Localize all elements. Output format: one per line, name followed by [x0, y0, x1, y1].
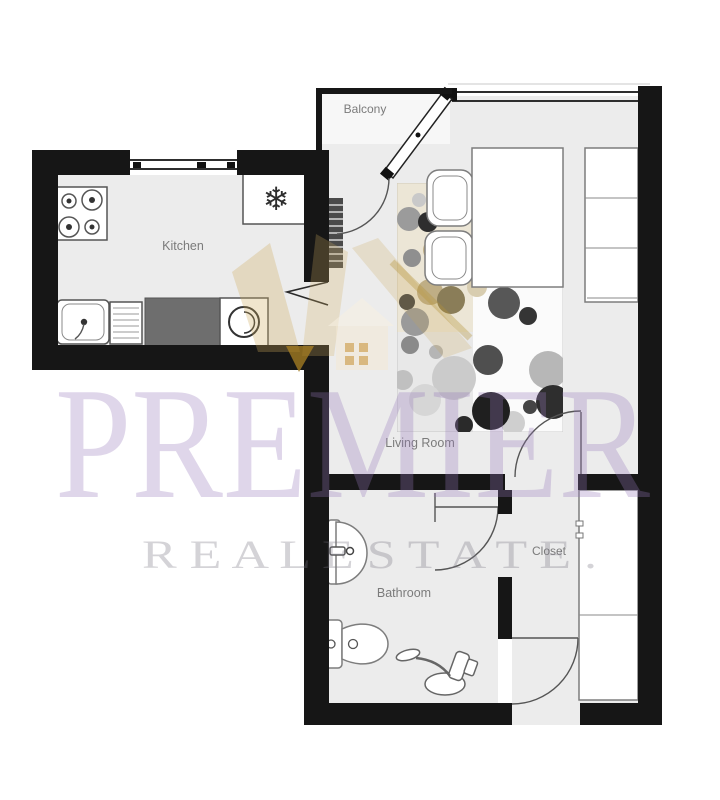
floorplan-svg: ❄ — [0, 0, 720, 800]
dining-chair — [425, 231, 473, 285]
rug-dot — [397, 207, 421, 231]
toilet — [320, 620, 388, 668]
rug-dot — [488, 287, 520, 319]
rug-dot — [401, 336, 419, 354]
rug-dot — [519, 307, 537, 325]
dining-chair — [427, 170, 473, 226]
kitchen-counter — [145, 298, 220, 346]
kitchen-sink — [57, 300, 109, 344]
watermark-tagline-text: R E A L E S T A T E . — [142, 532, 597, 577]
rug-dot — [403, 249, 421, 267]
balcony-label: Balcony — [344, 102, 387, 116]
freezer-snowflake-icon: ❄ — [263, 180, 290, 218]
floorplan-canvas: ❄ — [0, 0, 720, 800]
rug-dot — [412, 193, 426, 207]
balcony-wall-left — [316, 88, 322, 152]
kitchen-label: Kitchen — [162, 239, 204, 253]
watermark-brand-text: PREMIER — [55, 354, 650, 532]
kitchen-window — [130, 152, 237, 173]
bathroom-label: Bathroom — [377, 586, 431, 600]
dining-table — [472, 148, 563, 287]
balcony-wall-top — [316, 88, 452, 94]
living-room-cabinet — [585, 148, 638, 302]
kitchen-fridge: ❄ — [243, 174, 309, 224]
closet-exit-floor — [512, 703, 580, 725]
kitchen-stove — [55, 187, 107, 240]
kitchen-drainboard — [110, 302, 142, 344]
